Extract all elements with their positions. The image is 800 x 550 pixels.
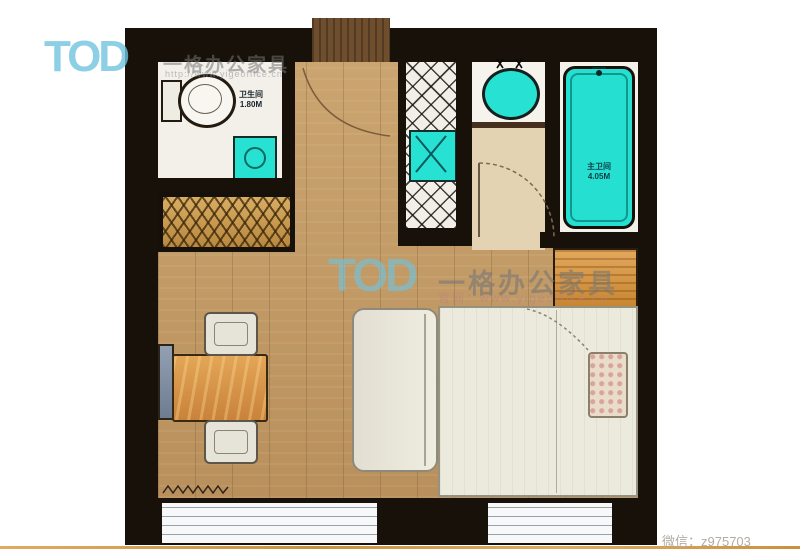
window-right [488, 503, 612, 543]
desk [172, 354, 268, 422]
washing-machine-drum [244, 147, 266, 169]
floorplan-screenshot: 卫生间 1.80M 主卫间 4.05M TOD 一格办公家具 http://ww… [0, 0, 800, 550]
wash-basin [482, 68, 540, 120]
bathtub-rim [570, 73, 628, 222]
wall-bathroom-bottom [158, 178, 295, 192]
wechat-contact-label: 微信：z975703 [662, 531, 751, 550]
bath-hall-floor [472, 128, 545, 250]
window-left [162, 503, 377, 543]
bathroom-label-area: 1.80M [228, 100, 274, 110]
toilet-bowl-inner [188, 84, 222, 114]
bathroom-label-name: 卫生间 [239, 90, 263, 99]
entry-door [312, 18, 390, 62]
wardrobe [158, 192, 295, 252]
bathtub-label: 主卫间 4.05M [568, 162, 630, 183]
bed-bench-seam [424, 314, 426, 466]
bed-blanket-fold [556, 310, 557, 493]
kitchen-sink [409, 130, 457, 182]
wall-column-left [398, 62, 406, 246]
bathtub [563, 66, 635, 229]
chair-bottom [204, 420, 258, 464]
wall-bath-bottom [540, 232, 638, 248]
bathroom-label: 卫生间 1.80M [228, 90, 274, 111]
basin-counter-edge [472, 122, 545, 128]
chair-top [204, 312, 258, 356]
bathtub-label-name: 主卫间 [587, 162, 611, 171]
wall-bathroom-right [282, 62, 295, 180]
wall-column-cap [398, 228, 472, 246]
dresser [553, 248, 638, 310]
chair-cushion [214, 430, 248, 454]
bathtub-label-area: 4.05M [568, 172, 630, 182]
watermark-logo-topleft: TOD [44, 32, 127, 82]
wall-basin-right [545, 62, 560, 234]
wall-column-right [456, 62, 472, 228]
bed-pillow [588, 352, 628, 418]
chair-cushion [214, 322, 248, 346]
